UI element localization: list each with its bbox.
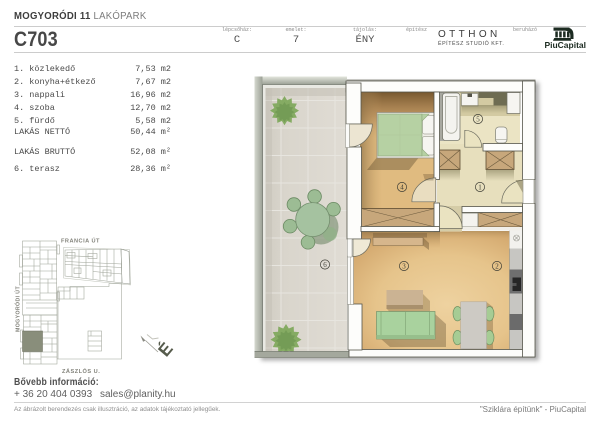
svg-text:ZÁSZLÓS U.: ZÁSZLÓS U. — [62, 367, 100, 375]
svg-text:6: 6 — [323, 261, 327, 269]
svg-text:FRANCIA ÚT: FRANCIA ÚT — [61, 238, 100, 245]
svg-text:3: 3 — [402, 263, 406, 271]
svg-text:1: 1 — [478, 184, 482, 192]
svg-text:MOGYORÓDI ÚT: MOGYORÓDI ÚT — [14, 286, 22, 332]
svg-text:5: 5 — [476, 116, 480, 124]
svg-text:2: 2 — [495, 263, 499, 271]
svg-text:4: 4 — [400, 184, 404, 192]
svg-text:É: É — [153, 338, 177, 360]
